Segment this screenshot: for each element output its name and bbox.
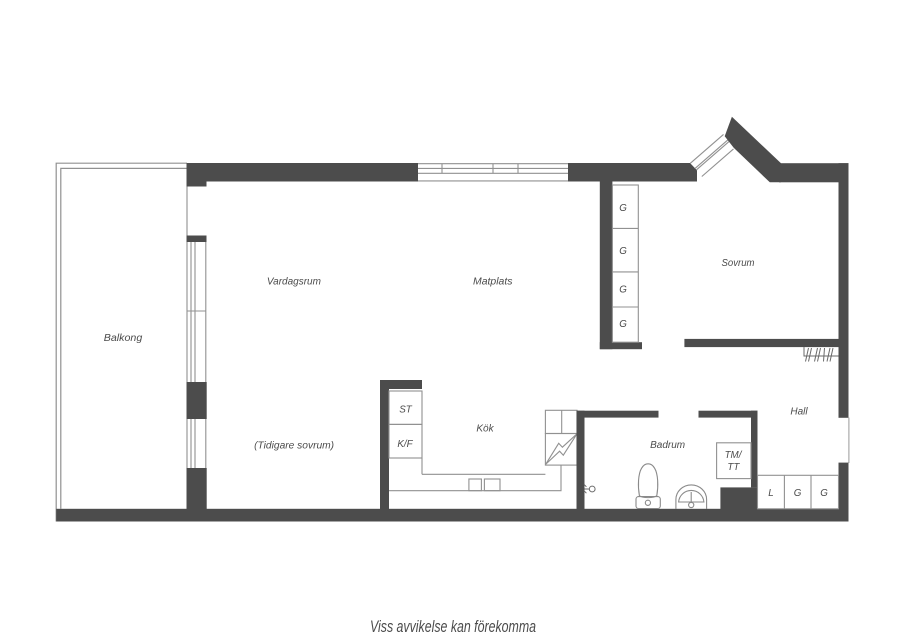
- svg-text:Hall: Hall: [790, 407, 808, 418]
- svg-text:G: G: [794, 488, 802, 499]
- svg-text:Balkong: Balkong: [104, 333, 143, 344]
- svg-text:Vardagsrum: Vardagsrum: [267, 277, 321, 288]
- svg-text:Matplats: Matplats: [473, 277, 513, 288]
- svg-text:G: G: [619, 246, 627, 257]
- svg-text:Badrum: Badrum: [650, 440, 685, 451]
- svg-text:TT: TT: [727, 462, 740, 473]
- svg-text:L: L: [768, 488, 773, 499]
- svg-text:ST: ST: [399, 405, 413, 416]
- svg-text:K/F: K/F: [397, 439, 413, 450]
- svg-text:(Tidigare sovrum): (Tidigare sovrum): [254, 441, 334, 452]
- svg-text:TM/: TM/: [725, 450, 743, 461]
- svg-text:G: G: [619, 285, 627, 296]
- svg-text:Sovrum: Sovrum: [722, 258, 755, 269]
- svg-text:Viss avvikelse kan förekomma: Viss avvikelse kan förekomma: [370, 617, 536, 636]
- svg-text:G: G: [619, 319, 627, 330]
- svg-text:Kök: Kök: [476, 424, 494, 435]
- svg-text:G: G: [619, 203, 627, 214]
- svg-text:G: G: [820, 488, 828, 499]
